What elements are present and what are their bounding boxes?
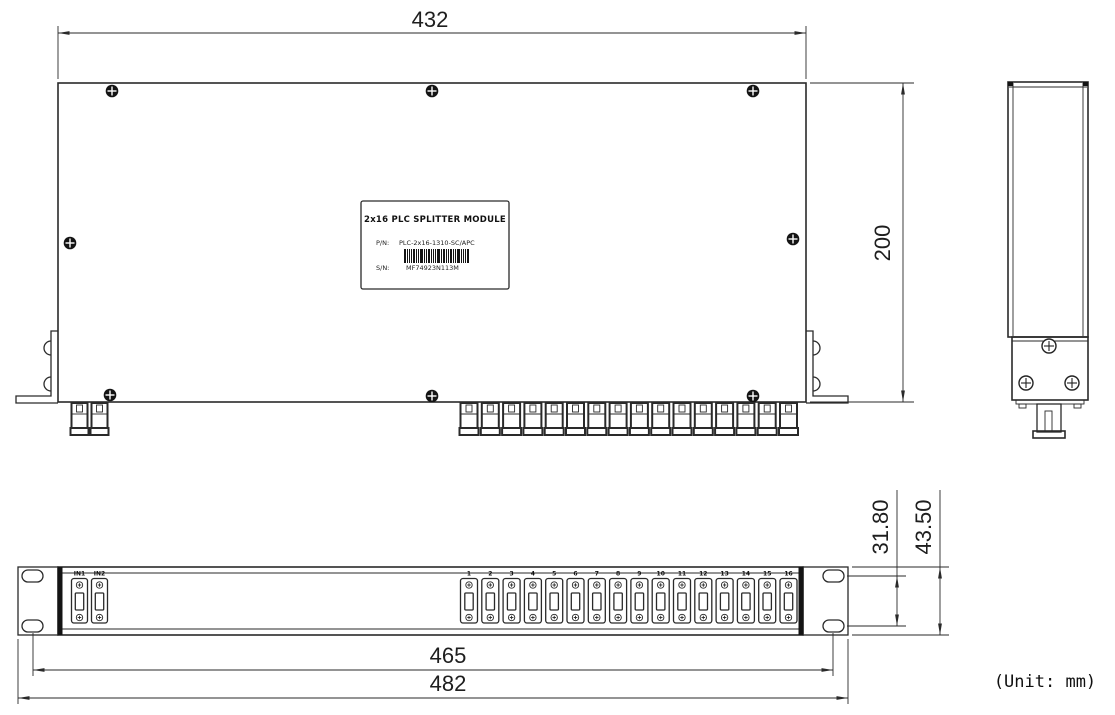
sc-adapter-top-view bbox=[651, 403, 670, 435]
sc-adapter-front-view: 16 bbox=[780, 571, 797, 624]
left-rack-ear bbox=[18, 567, 58, 635]
side-view-connector bbox=[1033, 404, 1065, 438]
front-output-ports: 12345678910111213141516 bbox=[461, 571, 798, 624]
side-view-screws bbox=[1019, 339, 1079, 390]
right-rack-ear bbox=[803, 567, 848, 635]
dim-ear-hole-spacing-text: 31.80 bbox=[868, 499, 893, 554]
serial-number-value: MF74923N113M bbox=[406, 264, 459, 272]
output-port-number: 9 bbox=[637, 571, 641, 578]
output-port-number: 7 bbox=[595, 571, 599, 578]
left-ear-bottom-slot bbox=[22, 620, 43, 632]
right-ear-top-slot bbox=[823, 570, 844, 582]
sc-adapter-top-view bbox=[758, 403, 777, 435]
dim-mounting-hole-span-text: 465 bbox=[430, 643, 467, 668]
top-view-input-adapters bbox=[71, 403, 109, 435]
sc-adapter-front-view: 15 bbox=[759, 571, 776, 624]
output-port-number: 13 bbox=[720, 571, 728, 578]
sc-adapter-top-view bbox=[523, 403, 542, 435]
right-mounting-bracket bbox=[806, 331, 848, 403]
dimension-mounting-hole-span: 465 bbox=[33, 633, 833, 676]
sc-adapter-front-view: 12 bbox=[695, 571, 712, 624]
top-view-output-adapters bbox=[460, 403, 799, 435]
sc-adapter-front-view: 4 bbox=[524, 571, 541, 624]
screw-icon bbox=[426, 85, 439, 98]
side-view-body bbox=[1008, 82, 1088, 337]
plc-splitter-technical-drawing: 2x16 PLC SPLITTER MODULE P/N: PLC-2x16-1… bbox=[0, 0, 1115, 715]
sc-adapter-front-view: 14 bbox=[737, 571, 754, 624]
output-port-number: 15 bbox=[763, 571, 771, 578]
sc-adapter-top-view bbox=[630, 403, 649, 435]
output-port-number: 11 bbox=[678, 571, 686, 578]
sc-adapter-top-view bbox=[460, 403, 479, 435]
unit-note: (Unit: mm) bbox=[994, 672, 1096, 692]
sc-adapter-front-view: 3 bbox=[503, 571, 520, 624]
sc-adapter-top-view bbox=[736, 403, 755, 435]
screw-icon bbox=[747, 390, 760, 403]
input-port-label: IN2 bbox=[94, 571, 105, 578]
serial-number-label: S/N: bbox=[376, 264, 389, 272]
output-port-number: 1 bbox=[467, 571, 471, 578]
output-port-number: 2 bbox=[488, 571, 492, 578]
front-input-ports: IN1IN2 bbox=[72, 571, 108, 624]
barcode bbox=[404, 249, 469, 263]
sc-adapter-top-view bbox=[673, 403, 692, 435]
output-port-number: 3 bbox=[510, 571, 514, 578]
sc-adapter-front-view: 2 bbox=[482, 571, 499, 624]
screw-icon bbox=[426, 390, 439, 403]
front-panel-outline bbox=[58, 567, 803, 635]
sc-adapter-top-view bbox=[91, 403, 109, 435]
left-ear-top-slot bbox=[22, 570, 43, 582]
output-port-number: 4 bbox=[531, 571, 535, 578]
dim-overall-width-text: 482 bbox=[430, 671, 467, 696]
screw-icon bbox=[106, 85, 119, 98]
dim-top-depth-text: 200 bbox=[870, 225, 895, 262]
screw-icon bbox=[1065, 376, 1079, 390]
front-panel-view: IN1IN2 12345678910111213141516 31.80 43.… bbox=[18, 490, 949, 704]
dimension-ear-hole-spacing: 31.80 bbox=[847, 490, 906, 626]
output-port-number: 8 bbox=[616, 571, 620, 578]
engineering-drawing-canvas: 2x16 PLC SPLITTER MODULE P/N: PLC-2x16-1… bbox=[0, 0, 1115, 715]
sc-adapter-front-view: 5 bbox=[546, 571, 563, 624]
sc-adapter-top-view bbox=[609, 403, 628, 435]
sc-adapter-top-view bbox=[587, 403, 606, 435]
output-port-number: 10 bbox=[657, 571, 665, 578]
sc-adapter-front-view: IN1 bbox=[72, 571, 88, 624]
sc-adapter-front-view: 9 bbox=[631, 571, 648, 624]
left-mounting-bracket bbox=[16, 331, 58, 403]
sc-adapter-front-view: 10 bbox=[652, 571, 669, 624]
output-port-number: 6 bbox=[573, 571, 577, 578]
input-port-label: IN1 bbox=[74, 571, 85, 578]
dim-panel-height-text: 43.50 bbox=[911, 499, 936, 554]
sc-adapter-front-view: 8 bbox=[610, 571, 627, 624]
sc-adapter-top-view bbox=[502, 403, 521, 435]
dim-top-width-text: 432 bbox=[412, 7, 449, 32]
right-ear-bottom-slot bbox=[823, 620, 844, 632]
part-number-value: PLC-2x16-1310-SC/APC bbox=[399, 239, 475, 247]
sc-adapter-top-view bbox=[694, 403, 713, 435]
dimension-panel-height: 43.50 bbox=[852, 490, 949, 635]
sc-adapter-top-view bbox=[715, 403, 734, 435]
screw-icon bbox=[747, 85, 760, 98]
sc-adapter-front-view: 1 bbox=[461, 571, 478, 624]
output-port-number: 12 bbox=[699, 571, 707, 578]
side-view bbox=[1008, 82, 1088, 438]
sc-adapter-top-view bbox=[545, 403, 564, 435]
output-port-number: 14 bbox=[742, 571, 750, 578]
sc-adapter-front-view: IN2 bbox=[92, 571, 108, 624]
sc-adapter-front-view: 6 bbox=[567, 571, 584, 624]
screw-icon bbox=[104, 389, 117, 402]
dimension-top-depth: 200 bbox=[810, 83, 914, 402]
sc-adapter-front-view: 7 bbox=[588, 571, 605, 624]
part-number-label: P/N: bbox=[376, 239, 389, 247]
sc-adapter-top-view bbox=[71, 403, 89, 435]
screw-icon bbox=[787, 233, 800, 246]
sc-adapter-front-view: 11 bbox=[674, 571, 691, 624]
top-view: 2x16 PLC SPLITTER MODULE P/N: PLC-2x16-1… bbox=[16, 7, 914, 435]
dimension-top-width: 432 bbox=[58, 7, 806, 79]
screw-icon bbox=[1042, 339, 1056, 353]
label-plate: 2x16 PLC SPLITTER MODULE P/N: PLC-2x16-1… bbox=[361, 201, 509, 289]
output-port-number: 16 bbox=[784, 571, 792, 578]
screw-icon bbox=[64, 237, 77, 250]
sc-adapter-top-view bbox=[566, 403, 585, 435]
output-port-number: 5 bbox=[552, 571, 556, 578]
screw-icon bbox=[1019, 376, 1033, 390]
label-plate-title: 2x16 PLC SPLITTER MODULE bbox=[364, 215, 506, 225]
sc-adapter-top-view bbox=[481, 403, 500, 435]
sc-adapter-top-view bbox=[779, 403, 798, 435]
sc-adapter-front-view: 13 bbox=[716, 571, 733, 624]
